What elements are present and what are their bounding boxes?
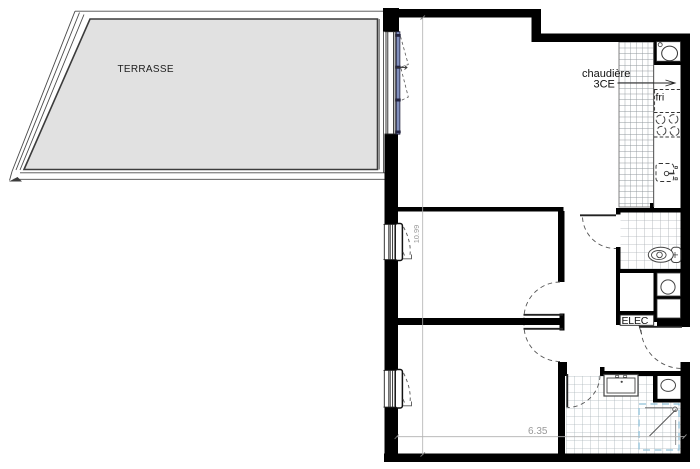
svg-text:fri: fri (656, 92, 665, 104)
svg-text:6.35: 6.35 (528, 426, 548, 437)
svg-text:TERRASSE: TERRASSE (118, 64, 174, 75)
svg-text:10.99: 10.99 (412, 225, 421, 244)
svg-text:ELEC: ELEC (622, 315, 649, 327)
svg-text:3CE: 3CE (594, 79, 615, 91)
